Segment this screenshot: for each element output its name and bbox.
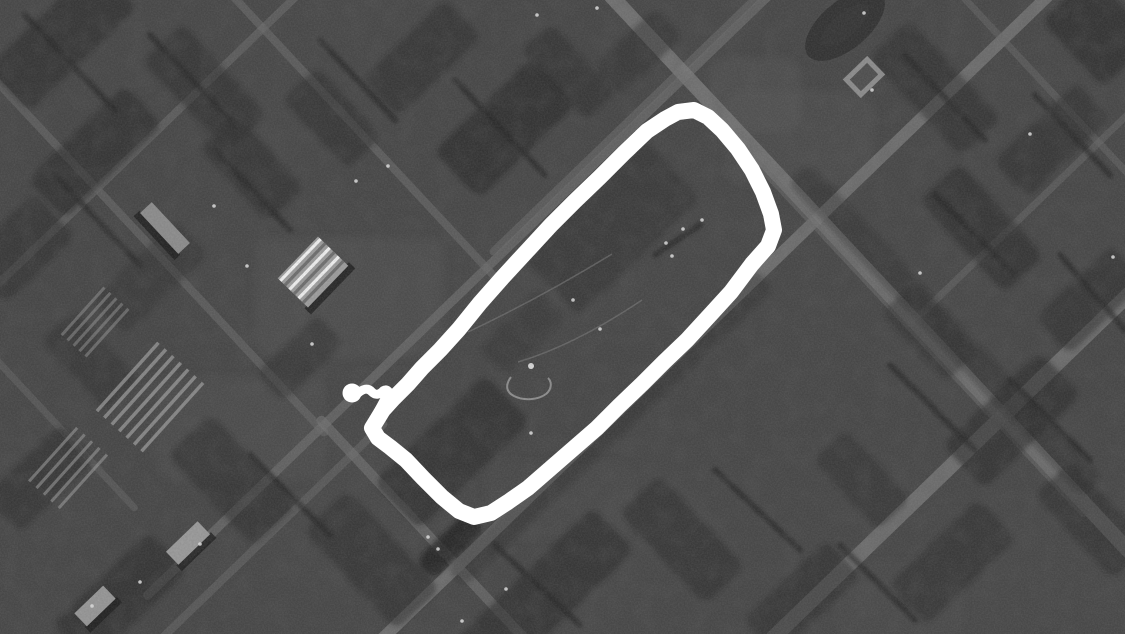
map-canvas	[0, 0, 1125, 634]
satellite-map-image[interactable]	[0, 0, 1125, 634]
film-grain-light	[0, 0, 1125, 634]
